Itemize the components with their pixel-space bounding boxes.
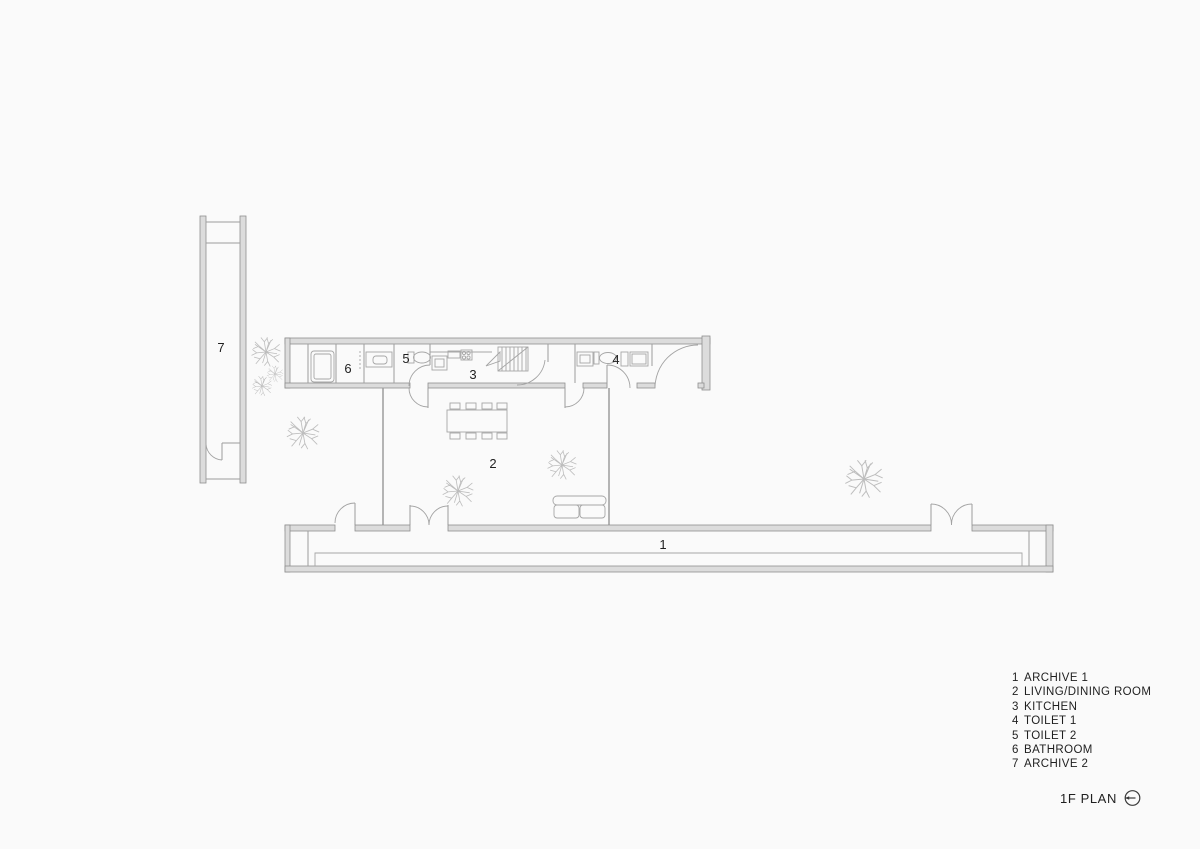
toilet1-door xyxy=(607,365,630,388)
topbar-east-cap xyxy=(702,336,710,390)
archive1-north-wall xyxy=(448,525,931,531)
toilet1-sink xyxy=(577,352,593,366)
legend-number: 4 xyxy=(1012,714,1019,728)
topbar-south-wall xyxy=(583,383,607,388)
legend-number: 6 xyxy=(1012,743,1019,757)
living-north-door-left xyxy=(409,388,428,408)
tree xyxy=(548,451,577,480)
archive2-left-wall xyxy=(200,216,206,483)
sofa xyxy=(553,496,606,518)
legend-item-kitchen: 3KITCHEN xyxy=(1012,700,1151,714)
hall-door-arc xyxy=(517,360,545,385)
legend-item-bathroom: 6BATHROOM xyxy=(1012,743,1151,757)
chair xyxy=(497,403,507,409)
building-archive1 xyxy=(285,504,1053,572)
legend-name: KITCHEN xyxy=(1024,701,1077,713)
toilet-2-fixture xyxy=(408,352,431,363)
archive1-east-cap xyxy=(1046,525,1053,572)
legend-name: ARCHIVE 1 xyxy=(1024,672,1088,684)
living-south-double-door xyxy=(410,505,448,525)
room-label-toilet2: 5 xyxy=(402,351,409,366)
legend-name: LIVING/DINING ROOM xyxy=(1024,686,1151,698)
topbar-east-door-arc xyxy=(655,345,698,388)
archive1-north-wall xyxy=(355,525,410,531)
bathtub xyxy=(311,351,334,382)
archive1-south-wall xyxy=(285,566,1053,572)
plan-title-label: 1F PLAN xyxy=(1060,791,1117,806)
legend-item-toilet1: 4TOILET 1 xyxy=(1012,714,1151,728)
room-label-toilet1: 4 xyxy=(612,352,619,367)
legend-number: 5 xyxy=(1012,729,1019,743)
legend-item-toilet2: 5TOILET 2 xyxy=(1012,729,1151,743)
archive1-west-cap xyxy=(285,525,290,572)
stair-break-line xyxy=(498,347,528,371)
dining-table xyxy=(447,403,507,439)
topbar-south-wall xyxy=(428,383,565,388)
topbar-north-wall xyxy=(285,338,710,344)
topbar-south-wall xyxy=(637,383,655,388)
tree xyxy=(252,376,272,396)
tree xyxy=(287,417,319,449)
tree xyxy=(252,338,281,367)
legend-number: 2 xyxy=(1012,685,1019,699)
topbar-south-wall xyxy=(285,383,410,388)
archive1-shelf xyxy=(315,553,1022,566)
legend-name: BATHROOM xyxy=(1024,744,1093,756)
legend-item-archive1: 1ARCHIVE 1 xyxy=(1012,671,1151,685)
tree xyxy=(267,366,283,382)
living-south-single-door xyxy=(335,503,355,525)
staircase xyxy=(486,347,528,371)
tree xyxy=(443,476,474,507)
chair xyxy=(450,433,460,439)
legend-item-living-dining: 2LIVING/DINING ROOM xyxy=(1012,685,1151,699)
legend-item-archive2: 7ARCHIVE 2 xyxy=(1012,757,1151,771)
chair xyxy=(450,403,460,409)
toilet2-door-arc xyxy=(409,365,430,386)
tree xyxy=(845,460,882,497)
archive2-right-wall xyxy=(240,216,246,483)
chair xyxy=(466,433,476,439)
archive1-north-wall xyxy=(285,525,335,531)
room-label-archive1: 1 xyxy=(659,537,666,552)
legend-number: 1 xyxy=(1012,671,1019,685)
chair xyxy=(482,433,492,439)
chair xyxy=(466,403,476,409)
legend: 1ARCHIVE 1 2LIVING/DINING ROOM 3KITCHEN … xyxy=(1012,671,1151,772)
topbar-south-wall xyxy=(698,383,704,388)
toilet1-cabinet xyxy=(621,352,648,366)
room-label-bathroom: 6 xyxy=(344,361,351,376)
archive1-north-wall xyxy=(972,525,1053,531)
room-label-kitchen: 3 xyxy=(469,367,476,382)
archive1-double-door xyxy=(931,504,972,525)
living-north-door-right xyxy=(565,388,584,408)
topbar-west-cap xyxy=(285,338,290,388)
legend-name: ARCHIVE 2 xyxy=(1024,758,1088,770)
chair xyxy=(497,433,507,439)
room-living-dining xyxy=(335,388,609,525)
stove xyxy=(461,350,472,360)
legend-name: TOILET 1 xyxy=(1024,715,1077,727)
legend-name: TOILET 2 xyxy=(1024,730,1077,742)
north-arrow-icon xyxy=(1123,789,1141,807)
plan-title: 1F PLAN xyxy=(1060,789,1141,807)
archive2-door xyxy=(206,443,240,460)
room-label-archive2: 7 xyxy=(217,340,224,355)
vanity-sink xyxy=(366,352,392,367)
chair xyxy=(482,403,492,409)
legend-number: 3 xyxy=(1012,700,1019,714)
room-label-living-dining: 2 xyxy=(489,456,496,471)
floor-plan-page: 1 2 3 4 5 6 7 1ARCHIVE 1 2LIVING/DINING … xyxy=(0,0,1200,849)
legend-number: 7 xyxy=(1012,757,1019,771)
